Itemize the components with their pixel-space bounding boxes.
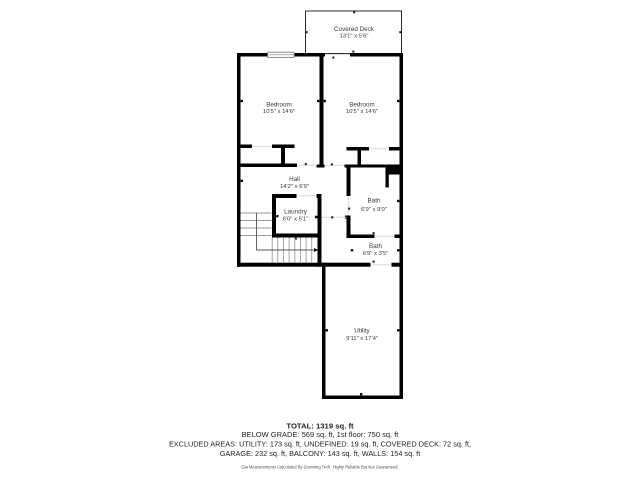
svg-text:Bath: Bath (369, 243, 382, 250)
svg-text:6'0" x 5'1": 6'0" x 5'1" (283, 217, 309, 223)
svg-text:14'2" x 6'9": 14'2" x 6'9" (280, 184, 309, 190)
svg-text:10'5" x 14'6": 10'5" x 14'6" (346, 109, 378, 115)
svg-text:Bath: Bath (368, 197, 381, 204)
svg-text:Gia Measurements Calculated By: Gia Measurements Calculated By Scanning … (241, 464, 398, 469)
svg-text:6'9" x 9'0": 6'9" x 9'0" (361, 207, 387, 213)
svg-text:EXCLUDED AREAS: UTILITY: 173 s: EXCLUDED AREAS: UTILITY: 173 sq. ft, UND… (169, 440, 471, 449)
svg-text:Laundry: Laundry (284, 209, 308, 216)
svg-text:9'11" x 17'4": 9'11" x 17'4" (346, 336, 378, 342)
svg-text:Utility: Utility (354, 328, 370, 335)
svg-text:Hall: Hall (289, 176, 300, 183)
svg-text:10'5" x 14'6": 10'5" x 14'6" (263, 109, 295, 115)
svg-text:Bedroom: Bedroom (349, 102, 375, 109)
svg-text:GARAGE: 232 sq. ft, BALCONY: 1: GARAGE: 232 sq. ft, BALCONY: 143 sq. ft,… (220, 449, 421, 458)
svg-text:Covered Deck: Covered Deck (334, 26, 375, 33)
svg-text:BELOW GRADE: 569 sq. ft, 1st f: BELOW GRADE: 569 sq. ft, 1st floor: 750 … (242, 430, 400, 439)
svg-text:Bedroom: Bedroom (266, 102, 292, 109)
svg-text:6'9" x 3'5": 6'9" x 3'5" (363, 251, 389, 257)
svg-text:13'1" x 5'6": 13'1" x 5'6" (339, 34, 368, 40)
